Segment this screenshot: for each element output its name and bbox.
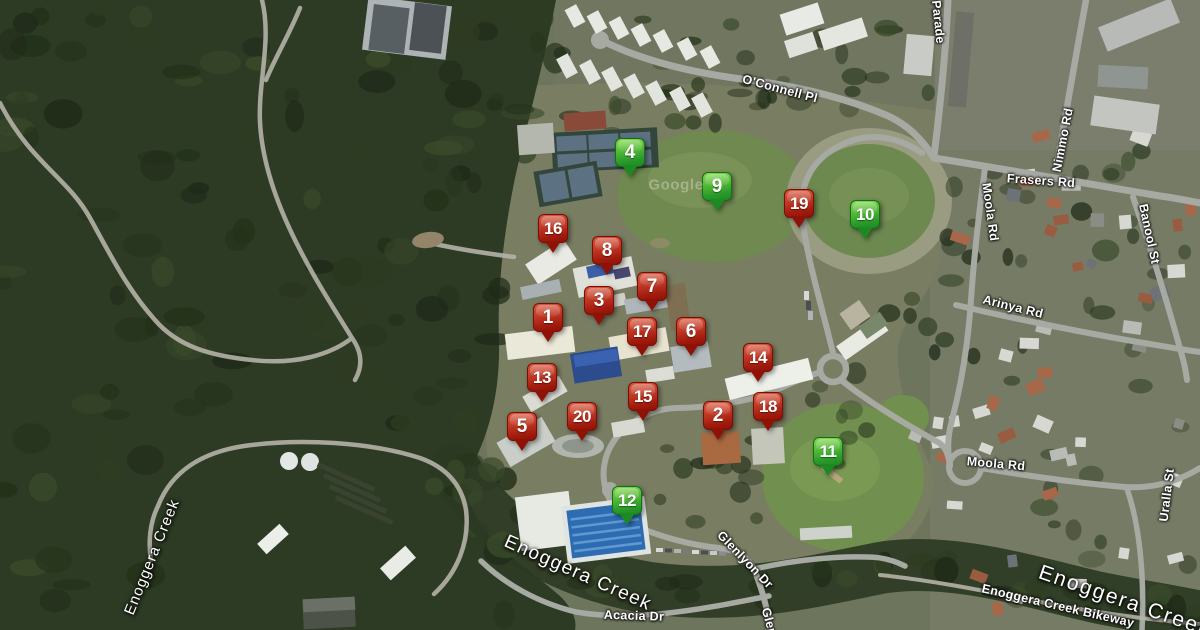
map-marker-17[interactable]: 17 <box>627 317 657 357</box>
marker-number: 6 <box>676 317 706 346</box>
marker-number: 17 <box>627 317 657 346</box>
map-marker-5[interactable]: 5 <box>507 412 537 452</box>
map-marker-4[interactable]: 4 <box>615 138 645 178</box>
map-marker-11[interactable]: 11 <box>813 437 843 477</box>
marker-number: 7 <box>637 272 667 301</box>
map-marker-9[interactable]: 9 <box>702 172 732 212</box>
marker-number: 10 <box>850 200 880 229</box>
marker-number: 9 <box>702 172 732 201</box>
marker-number: 16 <box>538 214 568 243</box>
map-marker-16[interactable]: 16 <box>538 214 568 254</box>
map-marker-3[interactable]: 3 <box>584 286 614 326</box>
marker-number: 1 <box>533 303 563 332</box>
marker-number: 8 <box>592 236 622 265</box>
marker-number: 11 <box>813 437 843 466</box>
map-marker-20[interactable]: 20 <box>567 402 597 442</box>
map-marker-1[interactable]: 1 <box>533 303 563 343</box>
map-marker-12[interactable]: 12 <box>612 486 642 526</box>
map-marker-2[interactable]: 2 <box>703 401 733 441</box>
marker-number: 14 <box>743 343 773 372</box>
map-marker-13[interactable]: 13 <box>527 363 557 403</box>
marker-number: 13 <box>527 363 557 392</box>
map-marker-15[interactable]: 15 <box>628 382 658 422</box>
map-marker-7[interactable]: 7 <box>637 272 667 312</box>
map-marker-19[interactable]: 19 <box>784 189 814 229</box>
satellite-map-view: O'Connell PlParadeNimmo RdFrasers RdMool… <box>0 0 1200 630</box>
marker-number: 4 <box>615 138 645 167</box>
marker-number: 3 <box>584 286 614 315</box>
map-marker-14[interactable]: 14 <box>743 343 773 383</box>
map-marker-6[interactable]: 6 <box>676 317 706 357</box>
marker-number: 19 <box>784 189 814 218</box>
marker-number: 15 <box>628 382 658 411</box>
marker-number: 20 <box>567 402 597 431</box>
map-marker-8[interactable]: 8 <box>592 236 622 276</box>
marker-number: 12 <box>612 486 642 515</box>
marker-number: 5 <box>507 412 537 441</box>
map-marker-18[interactable]: 18 <box>753 392 783 432</box>
marker-number: 18 <box>753 392 783 421</box>
marker-number: 2 <box>703 401 733 430</box>
map-marker-10[interactable]: 10 <box>850 200 880 240</box>
